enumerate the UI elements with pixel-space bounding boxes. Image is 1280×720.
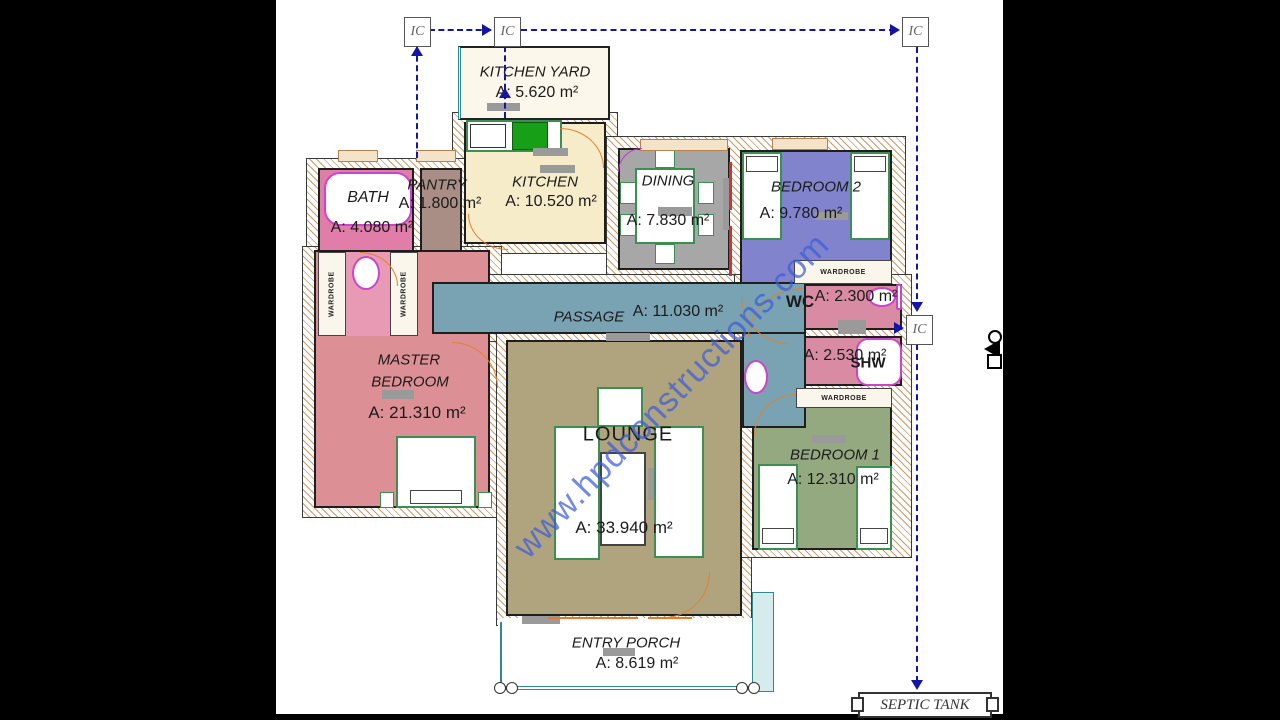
label-dining: DINING — [642, 173, 695, 190]
video-letterbox-right — [1003, 0, 1280, 720]
ic-marker: IC — [404, 17, 431, 47]
ic-marker: IC — [902, 17, 929, 47]
master-side-table — [380, 492, 394, 508]
arrow-right-icon — [482, 24, 492, 36]
video-frame: WARDROBE WARDROBE WARDROBE WARDROBE — [0, 0, 1280, 720]
kitchen-stove-icon — [512, 122, 548, 150]
drain-line — [416, 46, 418, 158]
room-kitchen-yard — [458, 46, 610, 120]
arrow-down-icon — [911, 302, 923, 312]
kitchen-sink-icon — [470, 124, 506, 148]
septic-tank-tab — [986, 697, 999, 712]
window-marker — [606, 333, 650, 341]
porch-column-icon — [748, 682, 760, 694]
basin-icon-passage — [744, 360, 768, 394]
label-passage: PASSAGE — [554, 309, 625, 326]
drain-line — [916, 344, 918, 682]
area-entry-porch: A: 8.619 m² — [596, 655, 679, 673]
porch-column-icon — [494, 682, 506, 694]
label-bath: BATH — [347, 189, 388, 207]
porch-steps — [752, 592, 774, 692]
pillow — [860, 528, 888, 544]
ic-label: IC — [913, 322, 927, 338]
porch-rail-left — [500, 622, 502, 688]
arrow-right-icon — [894, 322, 904, 334]
window-sill — [772, 138, 828, 150]
window-sill — [640, 139, 728, 151]
label-bedroom1: BEDROOM 1 — [790, 447, 880, 464]
label-entry-porch: ENTRY PORCH — [572, 635, 680, 652]
ic-label: IC — [411, 24, 425, 40]
wardrobe-bedroom1: WARDROBE — [796, 388, 892, 408]
label-master-line2: BEDROOM — [371, 374, 449, 391]
ic-label: IC — [501, 24, 515, 40]
window-sill — [338, 150, 378, 162]
red-wall-line — [729, 226, 732, 276]
drain-line — [521, 29, 895, 31]
master-side-table — [478, 492, 492, 508]
area-bath: A: 4.080 m² — [331, 219, 414, 237]
porch-column-icon — [736, 682, 748, 694]
arrow-right-icon — [890, 24, 900, 36]
label-bedroom2: BEDROOM 2 — [771, 179, 861, 196]
label-master-line1: MASTER — [378, 352, 441, 369]
pillow — [854, 156, 886, 172]
area-bedroom2: A: 9.780 m² — [760, 205, 843, 223]
pillow — [410, 490, 462, 504]
septic-tank-label: SEPTIC TANK — [880, 697, 969, 714]
area-master: A: 21.310 m² — [368, 403, 465, 423]
label-shw: SHW — [851, 355, 886, 372]
window-marker — [812, 435, 846, 443]
red-wall-line — [729, 162, 732, 210]
wardrobe-master-right: WARDROBE — [390, 252, 418, 336]
ic-marker: IC — [906, 315, 933, 345]
label-kitchen-yard: KITCHEN YARD — [480, 64, 591, 81]
label-kitchen: KITCHEN — [512, 174, 578, 191]
drain-line — [916, 47, 918, 309]
window-line — [548, 617, 638, 619]
lounge-tv-marker — [648, 468, 654, 500]
pillow — [746, 156, 778, 172]
drain-line — [504, 46, 506, 118]
window-marker — [838, 320, 866, 334]
dining-chair — [620, 182, 636, 204]
pillow — [762, 528, 794, 544]
arrow-up-icon — [499, 88, 511, 98]
arrow-up-icon — [411, 46, 423, 56]
area-wc: A: 2.300 m² — [815, 288, 898, 306]
area-dining: A: 7.830 m² — [627, 212, 710, 230]
ic-marker: IC — [494, 17, 521, 47]
area-pantry: A: 1.800 m² — [399, 195, 482, 213]
wardrobe-master-left: WARDROBE — [318, 252, 346, 336]
window-sill — [416, 150, 456, 162]
arrow-down-icon — [911, 680, 923, 690]
area-lounge: A: 33.940 m² — [575, 518, 672, 538]
dining-chair — [655, 244, 675, 264]
porch-rail-bottom — [500, 686, 758, 690]
area-passage: A: 11.030 m² — [633, 303, 723, 321]
label-pantry: PANTRY — [407, 177, 466, 194]
area-kitchen: A: 10.520 m² — [505, 193, 597, 211]
area-bedroom1: A: 12.310 m² — [787, 471, 879, 489]
ic-label: IC — [909, 24, 923, 40]
dining-chair — [698, 182, 714, 204]
dining-chair — [655, 148, 675, 168]
septic-tank: SEPTIC TANK — [858, 692, 992, 718]
window-marker — [382, 390, 414, 399]
porch-column-icon — [506, 682, 518, 694]
septic-tank-tab — [851, 697, 864, 712]
